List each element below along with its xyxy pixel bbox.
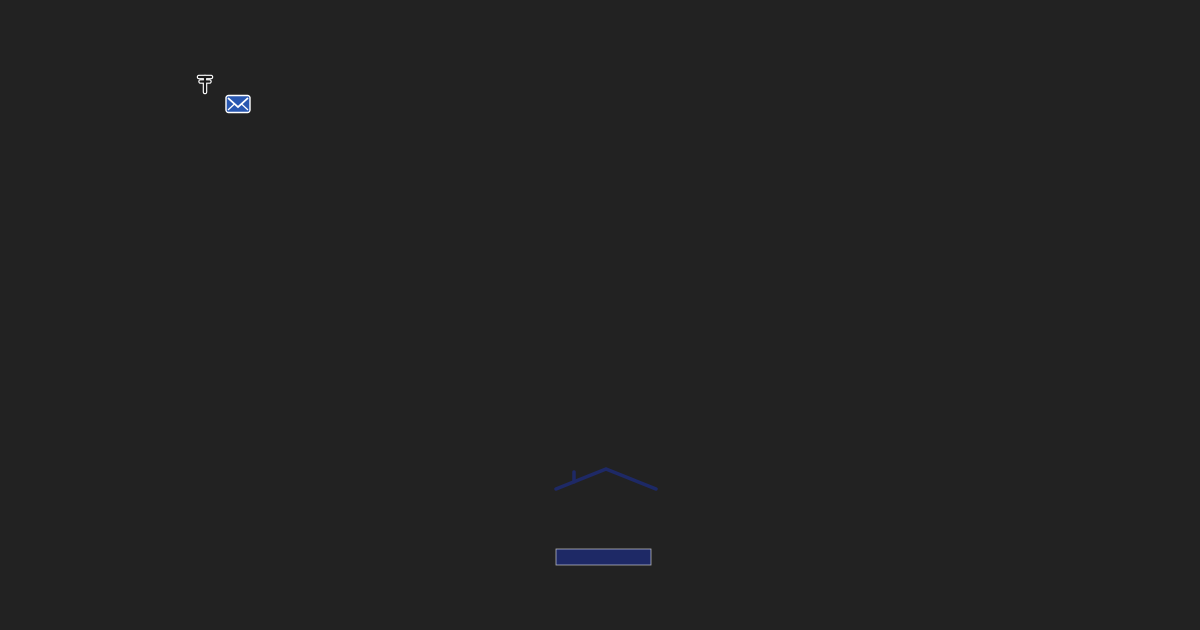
aerial-map-canvas (0, 0, 1200, 630)
logo-anniversary-banner (556, 549, 651, 565)
map-overlay-layer (199, 77, 250, 113)
kontakt-servis-logo (556, 469, 656, 565)
aerial-map-screenshot (0, 0, 1200, 630)
logo-roof-icon (556, 469, 656, 489)
post-office-icon (226, 96, 250, 113)
railway-station-icon (199, 77, 211, 92)
